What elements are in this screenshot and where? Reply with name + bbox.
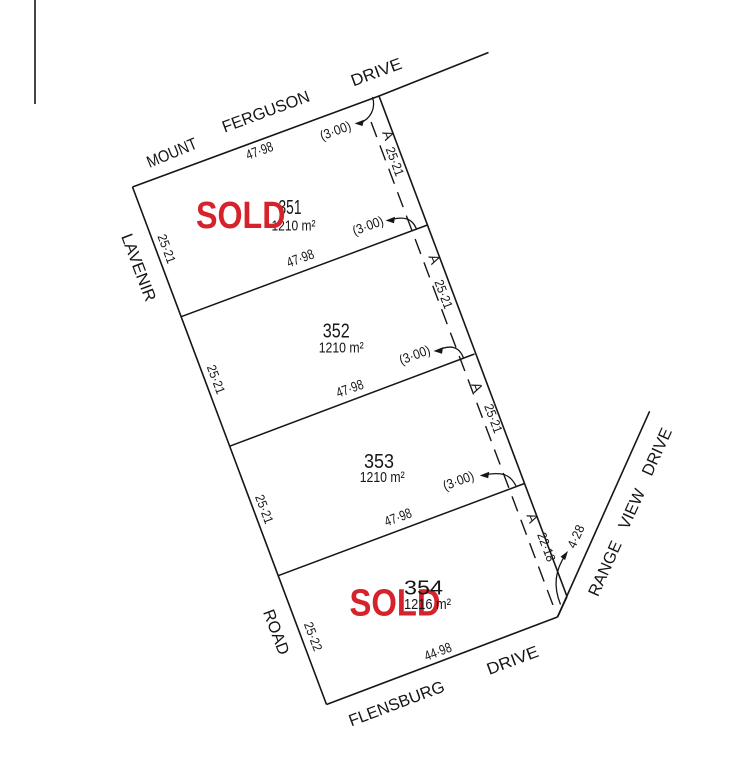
svg-text:1210 m²: 1210 m² <box>360 469 405 486</box>
svg-text:SOLD: SOLD <box>196 195 286 237</box>
svg-text:1216 m²: 1216 m² <box>404 596 451 613</box>
svg-text:1210 m²: 1210 m² <box>319 339 364 356</box>
